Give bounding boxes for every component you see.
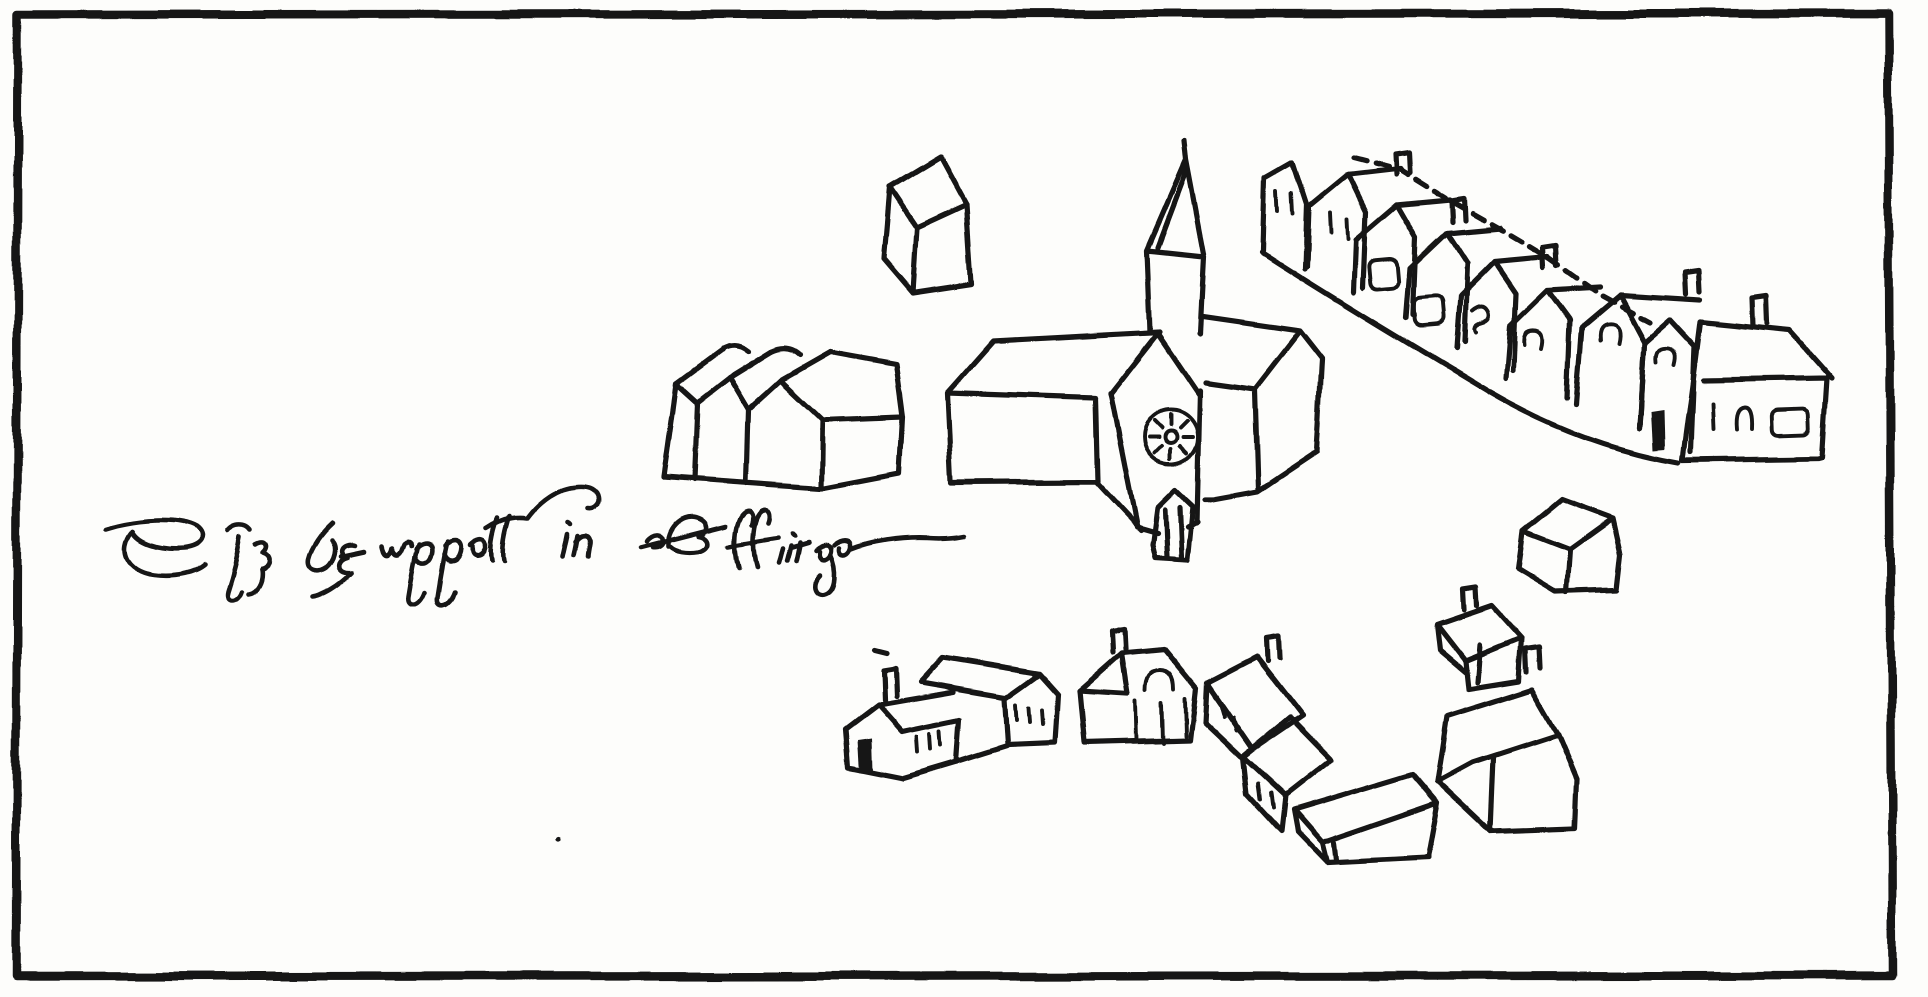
caption-transcription: The chappell in the ffrith: [104, 492, 984, 612]
gabled-house-lower: [1243, 718, 1331, 831]
gabled-house-middle: [1205, 636, 1303, 758]
lone-house-east: [1518, 499, 1621, 593]
small-cottage-east: [1437, 587, 1521, 689]
arched-opening: [1146, 670, 1174, 690]
terraced-row-northeast: [1262, 152, 1832, 462]
village-map-figure: The chappell in the ffrith: [0, 0, 1928, 997]
house-with-arched-door: [1080, 629, 1196, 743]
dark-doorway: [1651, 410, 1665, 450]
chimney: [1685, 271, 1700, 294]
chimney: [1267, 636, 1280, 661]
ink-speck: [556, 838, 561, 843]
church-clock-face: [1144, 410, 1198, 464]
row-house-7: [1576, 295, 1645, 428]
stray-mark: [875, 649, 887, 652]
row-house-1: [1263, 162, 1307, 268]
church-spire: [1147, 140, 1204, 334]
row-end-house: [1682, 296, 1832, 460]
church-chancel: [1203, 317, 1322, 500]
chimney: [1112, 629, 1126, 652]
dark-doorway: [857, 739, 872, 772]
roofline-hatching: [1354, 158, 1650, 322]
chimney: [883, 668, 896, 700]
cottage-southwest: [845, 649, 960, 778]
large-house-southeast: [1437, 647, 1577, 831]
chimney: [1463, 587, 1477, 610]
triple-gabled-building: [663, 346, 903, 488]
chimney: [1752, 296, 1767, 327]
lone-house-north: [884, 157, 972, 292]
chimney: [1525, 647, 1540, 672]
open-barn: [1293, 774, 1438, 863]
